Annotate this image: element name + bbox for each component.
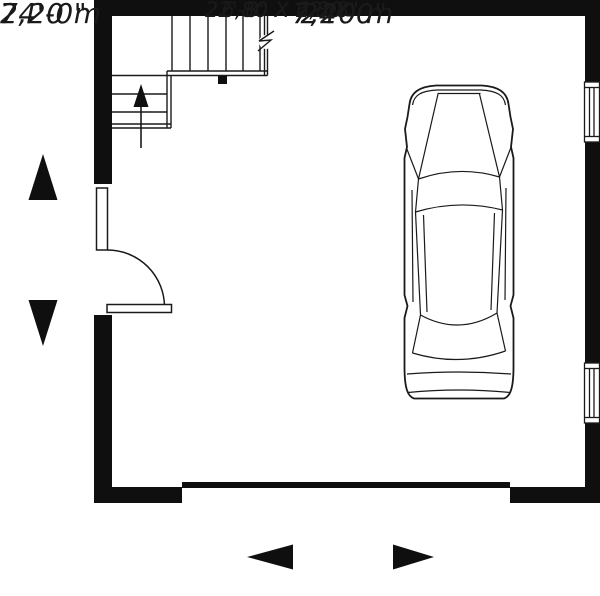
left-dimension-metric: 7,20 m <box>0 0 94 28</box>
floor-plan-canvas: 24'-0" 7,20 m 22'-8" X 22'-8" 6,80 X 6,8… <box>0 0 600 596</box>
car-top-view-icon <box>405 86 514 399</box>
garage-door-band <box>182 482 510 488</box>
window-symbol-icon <box>585 363 600 423</box>
wall-right <box>585 0 600 503</box>
arrow-down-icon <box>29 300 58 346</box>
door-swing-arc <box>108 250 165 307</box>
wall-left-lower <box>94 315 112 503</box>
arrow-up-icon <box>29 154 58 200</box>
floor-plan-drawing <box>0 0 600 596</box>
arrow-right-icon <box>393 545 434 570</box>
wall-bottom-right <box>510 487 600 503</box>
wall-bottom-left <box>94 487 182 503</box>
door-panel <box>97 188 108 250</box>
door-swing-icon <box>97 188 172 313</box>
staircase-icon <box>112 16 274 128</box>
bottom-dimension-metric: 7,20 m <box>280 0 406 28</box>
dimension-arrows <box>29 154 435 570</box>
window-symbol-icon <box>585 82 600 142</box>
newel-post <box>218 76 227 84</box>
door-leaf <box>107 305 172 313</box>
arrow-left-icon <box>247 545 293 570</box>
